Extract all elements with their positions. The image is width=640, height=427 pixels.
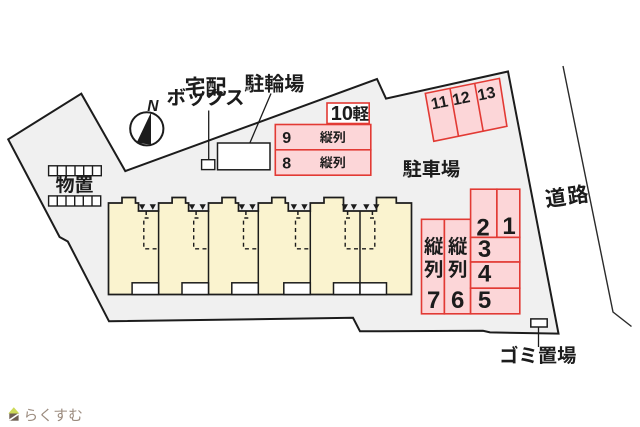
svg-text:3: 3 xyxy=(478,236,491,263)
svg-text:9: 9 xyxy=(282,130,291,147)
svg-text:13: 13 xyxy=(476,84,497,104)
svg-text:6: 6 xyxy=(451,287,464,314)
svg-text:7: 7 xyxy=(427,287,440,314)
svg-text:11: 11 xyxy=(430,93,450,113)
svg-text:10: 10 xyxy=(331,103,353,125)
svg-text:5: 5 xyxy=(478,287,491,314)
svg-text:4: 4 xyxy=(478,261,492,288)
svg-text:12: 12 xyxy=(451,89,472,109)
svg-text:8: 8 xyxy=(282,155,291,172)
svg-text:1: 1 xyxy=(502,213,515,240)
svg-text:N: N xyxy=(147,98,159,115)
